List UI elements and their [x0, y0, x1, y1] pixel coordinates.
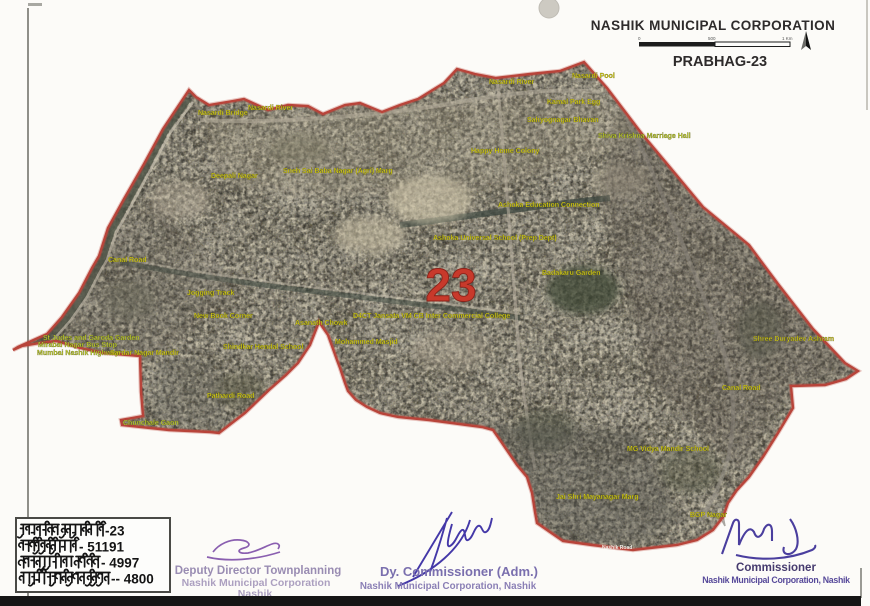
svg-text:Deepali Nagar: Deepali Nagar [211, 173, 258, 180]
svg-text:Shiva Krishna Marriage Hall: Shiva Krishna Marriage Hall [598, 133, 691, 140]
svg-text:Deputy Director Townplanning: Deputy Director Townplanning [175, 565, 342, 577]
svg-text:Commissioner: Commissioner [736, 562, 816, 574]
svg-text:Nashik Municipal Corporation,: Nashik Municipal Corporation, Nashik [360, 581, 537, 592]
svg-text:Ashoka Universal School (Prep: Ashoka Universal School (Prep Dept) [433, 235, 557, 242]
svg-text:-23: -23 [105, 524, 125, 539]
svg-text:Jogging Track: Jogging Track [187, 290, 235, 297]
svg-text:Dy. Commissioner (Adm.): Dy. Commissioner (Adm.) [380, 564, 538, 579]
svg-text:1 Km: 1 Km [782, 36, 793, 41]
svg-text:Ashoka Education Connection: Ashoka Education Connection [498, 202, 600, 209]
svg-text:NASHIK MUNICIPAL CORPORATION: NASHIK MUNICIPAL CORPORATION [591, 18, 835, 33]
svg-text:Nasardi Pool: Nasardi Pool [572, 73, 615, 80]
svg-text:23: 23 [425, 259, 476, 311]
svg-text:-- 4800: -- 4800 [111, 572, 154, 587]
svg-text:Jai Shri Mayanagar Marg: Jai Shri Mayanagar Marg [556, 494, 638, 501]
svg-text:Chunchale Gaon: Chunchale Gaon [123, 420, 179, 427]
svg-text:Nashik Municipal Corporation,: Nashik Municipal Corporation, Nashik [702, 575, 850, 585]
svg-text:MG Vidya Mandir School: MG Vidya Mandir School [627, 446, 709, 453]
svg-text:D4CT Jansata VM CB Inter Comme: D4CT Jansata VM CB Inter Commercial Coll… [353, 313, 510, 320]
svg-text:Canal Road: Canal Road [108, 257, 147, 264]
svg-text:Sahyognagar Bhavan: Sahyognagar Bhavan [527, 117, 599, 124]
svg-text:Mirabai Nagar Bus Stop: Mirabai Nagar Bus Stop [38, 342, 117, 349]
svg-text:Shindkar Hendal School: Shindkar Hendal School [223, 344, 304, 351]
svg-text:Asanath Chowk: Asanath Chowk [295, 320, 348, 327]
svg-text:Badakaru Garden: Badakaru Garden [542, 270, 600, 277]
svg-text:New Book Corner: New Book Corner [194, 313, 253, 320]
svg-text:- 4997: - 4997 [101, 556, 139, 571]
svg-text:BGP Nagar: BGP Nagar [690, 512, 727, 519]
svg-text:PRABHAG-23: PRABHAG-23 [673, 54, 767, 70]
svg-text:Happy Home Colony: Happy Home Colony [471, 148, 540, 155]
svg-text:- 51191: - 51191 [79, 540, 125, 555]
svg-text:Nasardi River: Nasardi River [489, 79, 534, 86]
svg-text:Shree Duryadev Ashram: Shree Duryadev Ashram [753, 336, 834, 343]
svg-text:Nashik Road: Nashik Road [602, 545, 632, 551]
svg-text:St Judes and Garoda Garden: St Judes and Garoda Garden [43, 335, 139, 342]
svg-text:Canal Road: Canal Road [722, 385, 761, 392]
svg-text:Sardar Nagar Mandir: Sardar Nagar Mandir [110, 350, 179, 357]
svg-text:Sneh Sai Baba Nagar (Agri) Mar: Sneh Sai Baba Nagar (Agri) Marg [283, 168, 393, 175]
svg-text:Nasardi Bridge: Nasardi Bridge [198, 110, 248, 117]
svg-text:Mohammed Masjid: Mohammed Masjid [335, 339, 398, 346]
svg-text:500: 500 [708, 36, 716, 41]
svg-text:Mumbai Nashik Highway: Mumbai Nashik Highway [37, 350, 119, 357]
svg-text:Pathardi Road: Pathardi Road [207, 393, 254, 400]
svg-text:Nasardi River: Nasardi River [248, 105, 293, 112]
svg-text:Kamal Park Egg: Kamal Park Egg [547, 99, 600, 106]
